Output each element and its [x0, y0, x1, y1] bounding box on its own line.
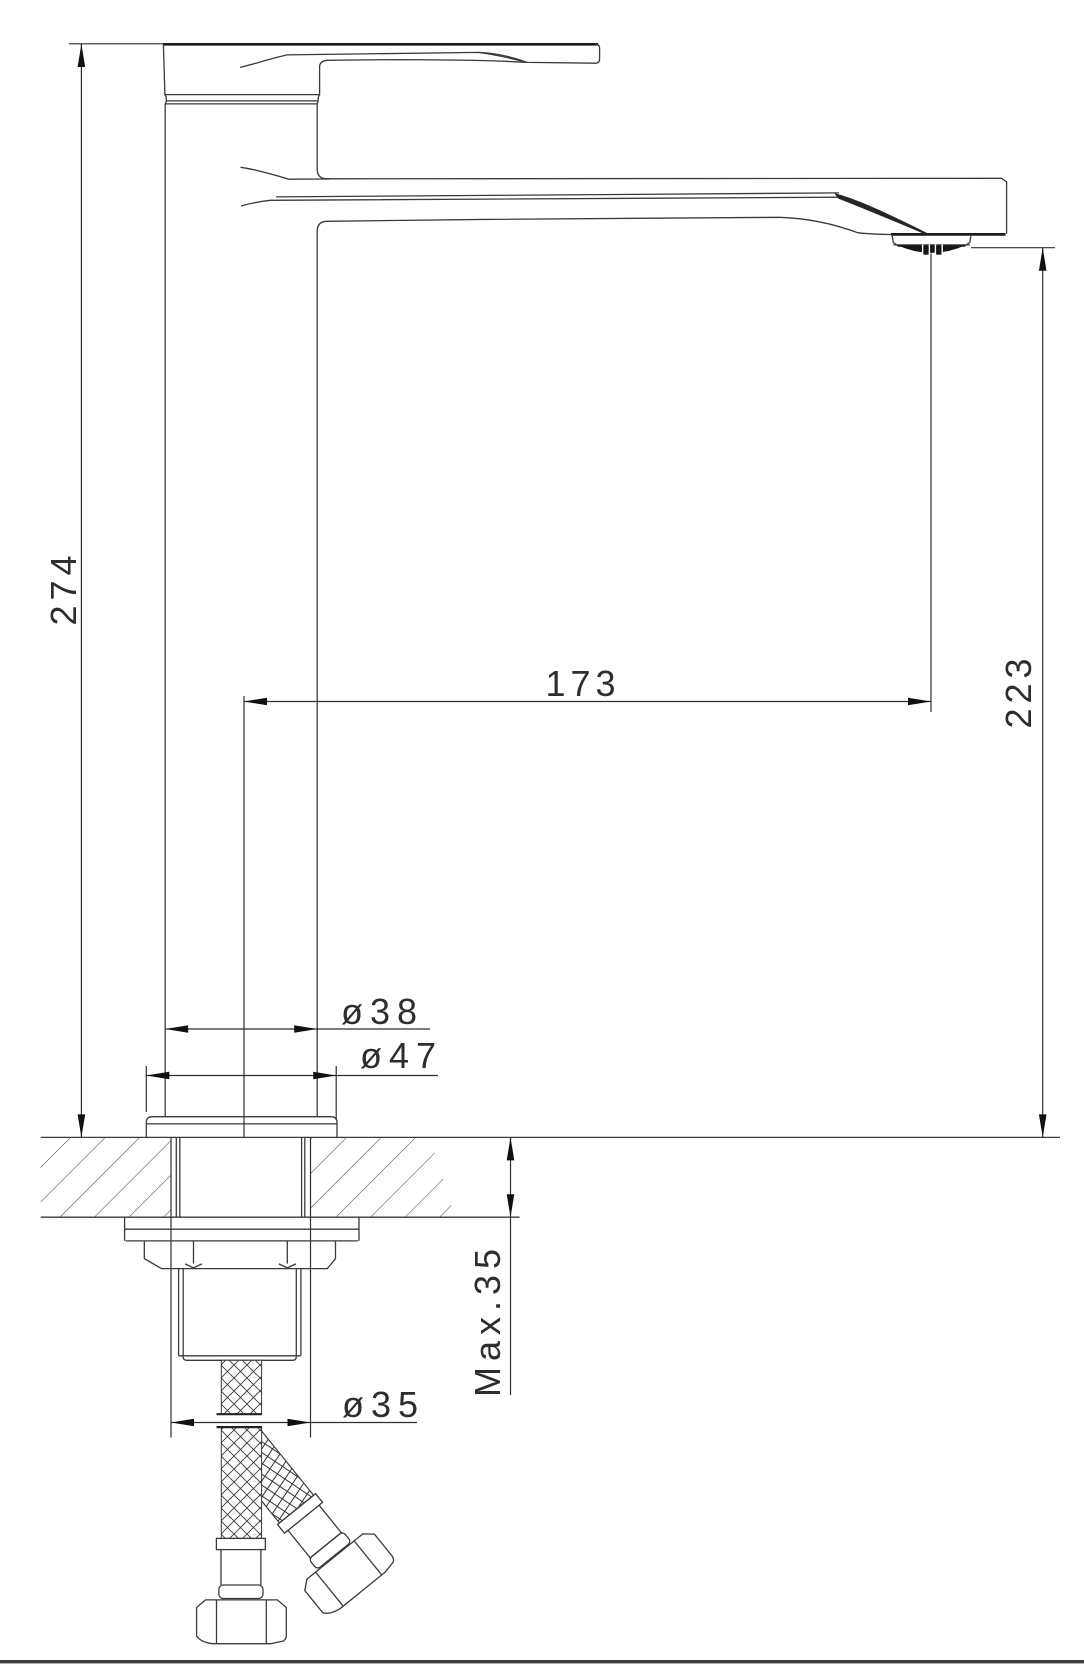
svg-text:173: 173 [545, 663, 620, 704]
svg-text:223: 223 [998, 653, 1039, 728]
svg-text:ø47: ø47 [360, 1035, 443, 1076]
svg-text:274: 274 [43, 550, 84, 625]
svg-text:ø35: ø35 [342, 1384, 425, 1425]
svg-text:Max.35: Max.35 [467, 1243, 508, 1397]
svg-text:ø38: ø38 [341, 991, 424, 1032]
